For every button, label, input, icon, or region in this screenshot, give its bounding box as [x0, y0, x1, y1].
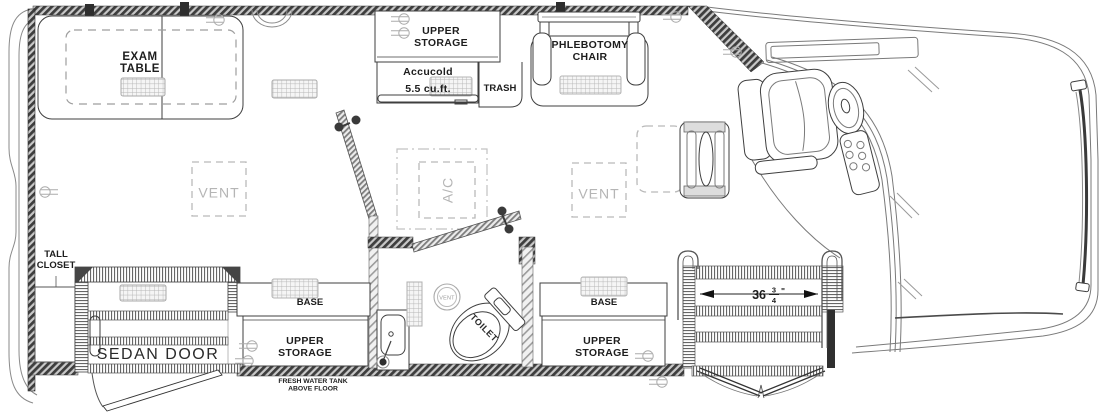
cab-header-console	[766, 37, 919, 62]
trash-label: TRASH	[484, 83, 517, 94]
fan-label: VENT	[439, 296, 455, 302]
upper-storage-label-2: STORAGE	[414, 37, 468, 49]
body-edge	[827, 310, 835, 368]
upper-storage-label-1: UPPER	[583, 335, 621, 347]
exam-area: EXAM TABLE	[38, 10, 317, 197]
table-grill	[121, 78, 165, 96]
dim-numerator: 3	[772, 286, 776, 295]
fridge-size-label: 5.5 cu.ft.	[405, 83, 451, 95]
phlebotomy-label-1: PHLEBOTOMY	[552, 39, 629, 51]
exam-table-label-2: TABLE	[120, 63, 160, 75]
entry-step	[695, 306, 822, 316]
seat-footprint-dashed	[637, 126, 683, 192]
outlet-symbol	[649, 377, 667, 387]
driver-seat	[737, 68, 841, 176]
door-hinge	[335, 123, 344, 132]
exam-table-label-1: EXAM	[122, 51, 157, 63]
open-door-leaf	[412, 211, 521, 252]
base-label: BASE	[297, 297, 323, 308]
dash-console	[839, 129, 881, 196]
bath-wall-right	[522, 247, 533, 367]
dim-unit: "	[781, 286, 785, 296]
base-label: BASE	[591, 297, 617, 308]
tall-closet: TALL CLOSET	[35, 249, 76, 362]
upper-storage-label-2: STORAGE	[278, 347, 332, 359]
fresh-water-note-2: ABOVE FLOOR	[288, 386, 338, 393]
bottom-wall-left	[28, 362, 78, 375]
mobile-clinic-floorplan: EXAM TABLE UPPER STORAGE Accucold 5.5 cu…	[0, 0, 1110, 418]
phlebotomy-label-2: CHAIR	[573, 51, 608, 63]
entry-pillar-right	[822, 266, 843, 312]
upper-storage-label-1: UPPER	[286, 335, 324, 347]
sedan-door-entry: SEDAN DOOR	[75, 267, 240, 411]
chair-armrest-left	[533, 33, 551, 85]
upper-storage-label-2: STORAGE	[575, 347, 629, 359]
glass-reflection-mark	[908, 67, 939, 92]
hvac: VENT A/C VENT	[192, 149, 626, 229]
door-hinge	[505, 225, 514, 234]
entry-pillar-left	[683, 266, 695, 368]
passenger-seat	[637, 122, 729, 198]
closet-box	[35, 287, 75, 362]
floor-grill	[272, 80, 317, 98]
tall-closet-label-2: CLOSET	[37, 260, 76, 271]
door-hinge	[352, 116, 361, 125]
fresh-water-note-1: FRESH WATER TANK	[278, 378, 347, 385]
outlet-symbol	[40, 187, 58, 197]
rear-wall	[28, 9, 35, 391]
base-grill	[581, 277, 627, 296]
fridge-brand-label: Accucold	[403, 66, 453, 78]
door-hinge	[498, 207, 507, 216]
door-width-dimension: 36 3 4 "	[700, 286, 818, 306]
sedan-door-label: SEDAN DOOR	[97, 346, 220, 363]
wall-return-grill	[407, 282, 422, 326]
step-tread	[88, 337, 228, 345]
door-run-channel	[1070, 80, 1089, 292]
step-grill	[120, 285, 166, 301]
bath-wall-stub	[368, 237, 413, 248]
door-swing-leaf	[103, 370, 222, 411]
cabinets-left: BASE UPPER STORAGE	[235, 279, 370, 366]
floorplan-canvas: EXAM TABLE UPPER STORAGE Accucold 5.5 cu…	[0, 0, 1110, 418]
upper-storage-label-1: UPPER	[422, 25, 460, 37]
door-swing-arc	[92, 373, 103, 407]
cab-step-edge	[752, 160, 840, 258]
entry-frame-top	[75, 267, 240, 282]
glass-reflection-mark	[898, 279, 922, 299]
tall-closet-label-1: TALL	[44, 249, 68, 260]
ac-label: A/C	[440, 177, 456, 203]
sink-drain	[379, 358, 386, 365]
base-grill	[272, 279, 318, 298]
entry-frame-left	[75, 282, 88, 372]
bathroom: VENT TOILET	[377, 282, 527, 373]
entry-step	[695, 332, 822, 342]
galley: UPPER STORAGE Accucold 5.5 cu.ft. TRASH	[375, 11, 522, 107]
step-tread	[88, 311, 228, 320]
chair-grill	[560, 76, 621, 94]
vent-right-label: VENT	[578, 186, 619, 202]
entry-step	[695, 266, 822, 279]
dim-denominator: 4	[772, 296, 777, 305]
exhaust-fan: VENT	[434, 284, 460, 310]
wall-stud	[180, 2, 189, 17]
vent-left-label: VENT	[198, 185, 239, 201]
chair-armrest-right	[627, 33, 645, 85]
cab-area	[637, 7, 1098, 353]
annotations: FRESH WATER TANK ABOVE FLOOR	[278, 378, 347, 393]
entry-step	[692, 366, 823, 376]
main-entry: 36 3 4 "	[678, 251, 843, 398]
dim-whole: 36	[752, 288, 766, 302]
